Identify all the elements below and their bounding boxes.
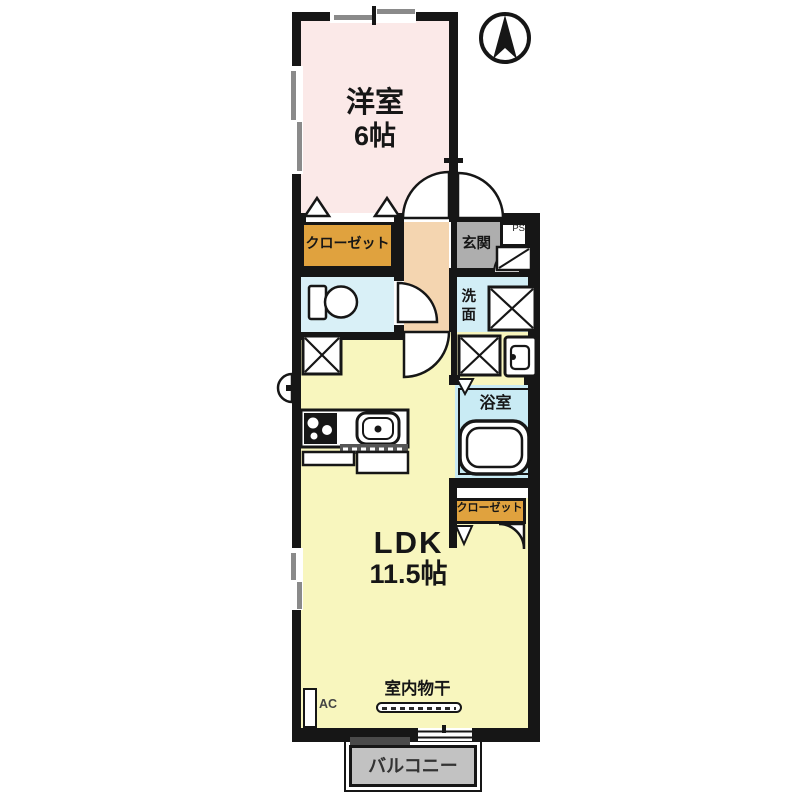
shoe-cabinet-icon (497, 247, 531, 270)
wall-bottom-right (472, 728, 540, 742)
wall-washroom-left (449, 277, 457, 332)
bathroom-label: 浴室 (455, 396, 536, 413)
balcony-floor: バルコニー (349, 745, 477, 787)
entrance-door-arc (458, 173, 503, 218)
closet-upper-label: クローゼット (301, 236, 394, 251)
wall-washroom-bath-right (524, 375, 536, 385)
pipe-space-label: PS (500, 224, 525, 234)
wall-bath-bottom (449, 478, 536, 488)
ldk-size-label: 11.5帖 (301, 560, 516, 588)
floor-plan: バルコニー (0, 0, 800, 800)
toilet-area (301, 277, 394, 332)
wall-toilet-bottom (292, 332, 404, 340)
western-room-size-label: 6帖 (301, 122, 449, 150)
meter-box-door-arc (278, 374, 292, 402)
drying-pole-bar (376, 702, 462, 713)
wall-closet-toilet (292, 269, 404, 277)
western-room-label: 洋室 (301, 88, 449, 118)
indoor-drying-label: 室内物干 (340, 681, 495, 698)
toilet-door-opening (394, 281, 404, 325)
wall-right-western-room (449, 12, 458, 222)
closet-lower-label: クローゼット (453, 503, 526, 515)
wall-entrance-bottom (449, 268, 540, 277)
drying-pole-dashes (382, 707, 456, 710)
wall-left-exterior (292, 12, 301, 742)
wall-washroom-ldk-line (451, 332, 457, 378)
wall-washroom-bath-left (449, 375, 460, 385)
balcony-threshold (350, 737, 410, 745)
hallway-area (404, 222, 449, 332)
ldk-label: LDK (301, 527, 516, 560)
ac-unit-box (303, 688, 317, 728)
wall-top-entrance (449, 213, 540, 222)
ac-label: AC (319, 698, 337, 711)
balcony-area: バルコニー (344, 740, 482, 792)
balcony-label: バルコニー (368, 757, 458, 776)
under-bath-white-strip (457, 488, 528, 498)
wall-top-western-room (292, 12, 458, 21)
north-arrow-icon (481, 14, 529, 62)
washroom-label: 洗面 (459, 288, 474, 325)
entrance-label: 玄関 (453, 237, 500, 252)
wall-western-room-bottom-stub (292, 213, 306, 222)
